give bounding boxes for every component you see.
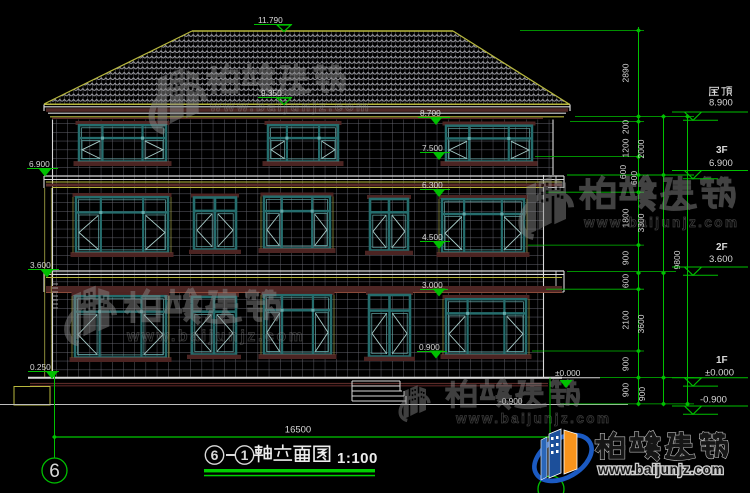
svg-text:2100: 2100 — [621, 310, 631, 329]
svg-text:1: 1 — [241, 447, 249, 463]
svg-text:900: 900 — [621, 357, 631, 371]
svg-text:7.500: 7.500 — [422, 143, 443, 153]
svg-text:1:100: 1:100 — [337, 450, 378, 467]
svg-text:www.baijunjz.com: www.baijunjz.com — [126, 328, 305, 345]
svg-text:6.300: 6.300 — [422, 180, 443, 190]
svg-text:www.baijunjz.com: www.baijunjz.com — [583, 215, 739, 230]
svg-text:2000: 2000 — [636, 139, 646, 158]
svg-text:0.250: 0.250 — [30, 362, 51, 372]
svg-text:3600: 3600 — [636, 314, 646, 333]
svg-text:11.790: 11.790 — [258, 15, 283, 25]
svg-text:2890: 2890 — [621, 63, 631, 82]
svg-text:8.900: 8.900 — [709, 98, 733, 109]
svg-text:4.500: 4.500 — [422, 232, 443, 242]
svg-text:900: 900 — [621, 251, 631, 265]
svg-text:-0.900: -0.900 — [700, 395, 727, 406]
svg-text:6.900: 6.900 — [709, 158, 733, 169]
svg-text:±0.000: ±0.000 — [705, 368, 734, 379]
svg-text:900: 900 — [637, 387, 647, 401]
svg-text:16500: 16500 — [285, 425, 311, 436]
svg-text:6: 6 — [49, 461, 60, 482]
svg-text:3.600: 3.600 — [709, 254, 733, 265]
svg-text:900: 900 — [621, 383, 631, 397]
svg-text:±0.000: ±0.000 — [555, 368, 581, 378]
svg-text:1F: 1F — [716, 355, 728, 366]
svg-text:1200: 1200 — [621, 138, 631, 157]
svg-text:6.900: 6.900 — [29, 159, 50, 169]
svg-text:600: 600 — [621, 274, 631, 288]
svg-text:www.baijunjz.com: www.baijunjz.com — [455, 411, 611, 426]
svg-text:8.700: 8.700 — [420, 108, 441, 118]
svg-text:www.baijunjz.com: www.baijunjz.com — [597, 462, 724, 477]
svg-text:200: 200 — [621, 120, 631, 134]
svg-text:www.baijunjz.com: www.baijunjz.com — [209, 98, 371, 114]
svg-text:3F: 3F — [716, 145, 728, 156]
svg-text:3.600: 3.600 — [30, 260, 51, 270]
svg-text:6: 6 — [211, 447, 219, 463]
svg-text:9.350: 9.350 — [261, 88, 282, 98]
svg-text:2F: 2F — [716, 242, 728, 253]
